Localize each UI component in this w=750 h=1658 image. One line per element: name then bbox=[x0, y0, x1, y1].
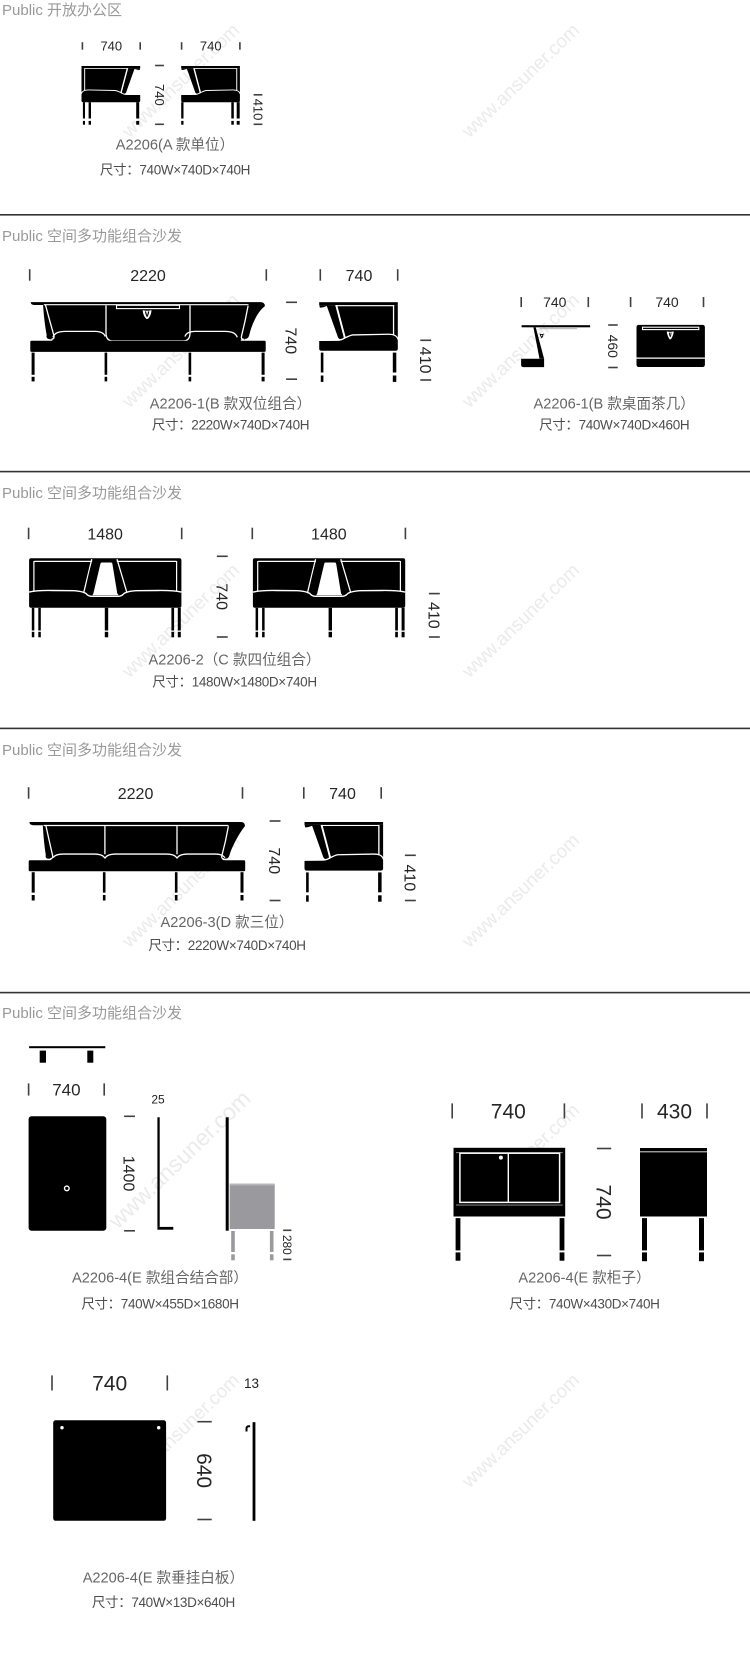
svg-text:640: 640 bbox=[192, 1453, 215, 1488]
svg-text:A2206-1(B 款双位组合）: A2206-1(B 款双位组合） bbox=[150, 395, 311, 412]
svg-text:740: 740 bbox=[100, 39, 122, 54]
svg-text:A2206-4(E 款组合结合部）: A2206-4(E 款组合结合部） bbox=[72, 1270, 248, 1287]
svg-text:410: 410 bbox=[425, 602, 442, 629]
svg-text:2220: 2220 bbox=[130, 268, 166, 285]
svg-text:A2206-1(B 款桌面茶几）: A2206-1(B 款桌面茶几） bbox=[534, 395, 695, 412]
svg-text:尺寸：2220W×740D×740H: 尺寸：2220W×740D×740H bbox=[152, 418, 309, 433]
svg-text:13: 13 bbox=[244, 1376, 259, 1391]
svg-text:Public 空间多功能组合沙发: Public 空间多功能组合沙发 bbox=[2, 742, 182, 759]
svg-text:尺寸：740W×455D×1680H: 尺寸：740W×455D×1680H bbox=[81, 1297, 238, 1312]
svg-text:740: 740 bbox=[92, 1373, 127, 1396]
svg-text:Public 空间多功能组合沙发: Public 空间多功能组合沙发 bbox=[2, 228, 182, 245]
svg-text:740: 740 bbox=[543, 294, 567, 310]
svg-text:25: 25 bbox=[151, 1093, 165, 1107]
svg-text:A2206-4(E 款柜子）: A2206-4(E 款柜子） bbox=[518, 1270, 650, 1287]
svg-text:A2206-4(E 款垂挂白板）: A2206-4(E 款垂挂白板） bbox=[83, 1569, 244, 1587]
svg-text:460: 460 bbox=[605, 335, 621, 359]
svg-text:410: 410 bbox=[401, 865, 418, 892]
svg-text:尺寸：1480W×1480D×740H: 尺寸：1480W×1480D×740H bbox=[152, 674, 316, 689]
svg-text:A2206-2（C 款四位组合）: A2206-2（C 款四位组合） bbox=[149, 652, 321, 669]
svg-text:740: 740 bbox=[329, 786, 356, 803]
svg-text:Public 空间多功能组合沙发: Public 空间多功能组合沙发 bbox=[2, 1005, 182, 1022]
svg-text:2220: 2220 bbox=[118, 786, 154, 803]
svg-text:740: 740 bbox=[591, 1184, 614, 1219]
svg-text:740: 740 bbox=[52, 1081, 80, 1100]
svg-text:Public 空间多功能组合沙发: Public 空间多功能组合沙发 bbox=[2, 485, 182, 502]
svg-text:410: 410 bbox=[416, 347, 433, 374]
svg-text:280: 280 bbox=[280, 1235, 294, 1255]
svg-text:740: 740 bbox=[346, 268, 373, 285]
svg-text:740: 740 bbox=[265, 847, 282, 874]
svg-text:1480: 1480 bbox=[87, 526, 123, 543]
svg-text:尺寸：740W×740D×460H: 尺寸：740W×740D×460H bbox=[539, 418, 689, 433]
svg-text:Public 开放办公区: Public 开放办公区 bbox=[2, 2, 122, 19]
svg-text:1480: 1480 bbox=[311, 526, 347, 543]
svg-text:740: 740 bbox=[491, 1101, 526, 1124]
svg-text:尺寸：740W×740D×740H: 尺寸：740W×740D×740H bbox=[100, 163, 250, 178]
svg-text:尺寸：740W×13D×640H: 尺寸：740W×13D×640H bbox=[92, 1595, 235, 1610]
svg-text:尺寸：2220W×740D×740H: 尺寸：2220W×740D×740H bbox=[148, 938, 305, 953]
svg-text:A2206-3(D 款三位）: A2206-3(D 款三位） bbox=[160, 914, 293, 931]
svg-text:740: 740 bbox=[152, 84, 167, 106]
svg-text:740: 740 bbox=[655, 294, 679, 310]
svg-text:740: 740 bbox=[212, 583, 229, 610]
svg-text:A2206(A 款单位）: A2206(A 款单位） bbox=[116, 136, 234, 153]
svg-text:740: 740 bbox=[200, 39, 222, 54]
svg-text:410: 410 bbox=[250, 99, 265, 121]
svg-text:尺寸：740W×430D×740H: 尺寸：740W×430D×740H bbox=[509, 1297, 659, 1312]
svg-text:430: 430 bbox=[657, 1101, 692, 1124]
svg-text:1400: 1400 bbox=[120, 1156, 137, 1192]
svg-text:740: 740 bbox=[282, 327, 299, 354]
